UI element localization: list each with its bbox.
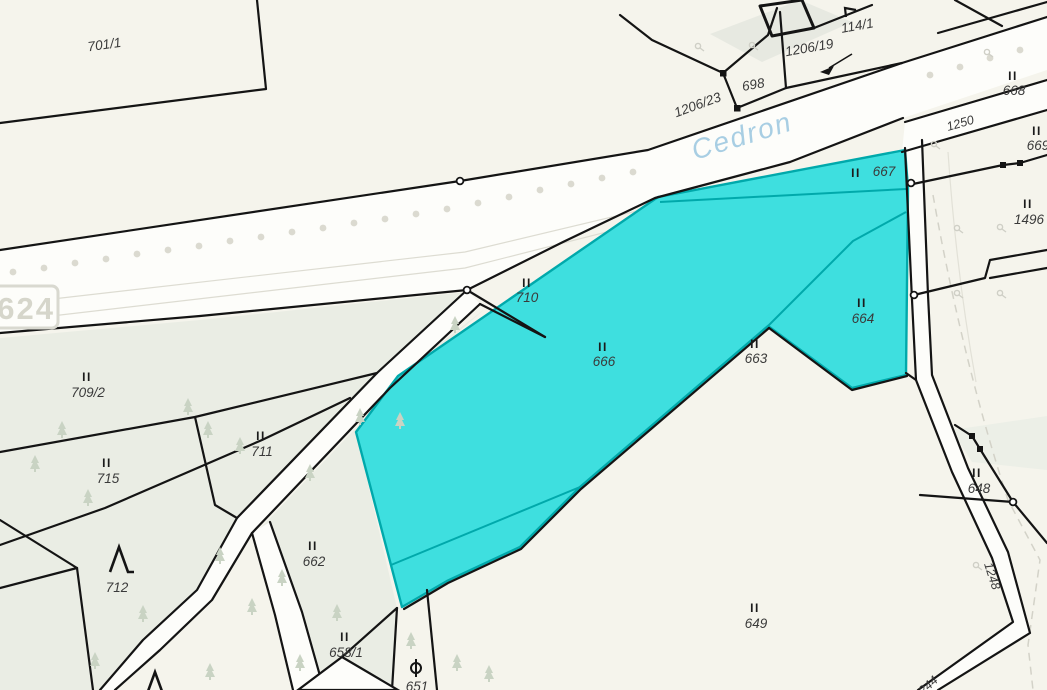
svg-text:II: II [1008,69,1018,83]
parcel-712[interactable]: 712 [106,580,129,595]
svg-text:II: II [102,456,112,470]
map-svg[interactable]: 8624 Cedron 1250 1248 1244 701/1 1206/23… [0,0,1047,690]
svg-text:666: 666 [593,354,616,369]
svg-text:II: II [256,429,266,443]
svg-text:664: 664 [852,311,875,326]
svg-text:712: 712 [106,580,129,595]
road-number-box: 8624 [0,286,58,328]
svg-text:II: II [750,601,760,615]
svg-text:1496: 1496 [1014,212,1045,227]
svg-text:663: 663 [745,351,768,366]
svg-text:669: 669 [1027,138,1047,153]
parcel-651[interactable]: 651 [406,679,429,690]
svg-text:711: 711 [251,444,273,459]
svg-text:II: II [598,340,608,354]
svg-text:II: II [851,166,861,180]
svg-text:715: 715 [97,471,120,486]
svg-text:II: II [1023,197,1033,211]
svg-text:667: 667 [873,164,896,179]
svg-text:649: 649 [745,616,768,631]
svg-text:II: II [522,276,532,290]
svg-text:II: II [82,370,92,384]
svg-text:651: 651 [406,679,429,690]
road-number-label: 8624 [0,291,55,326]
svg-text:709/2: 709/2 [71,385,105,400]
svg-text:II: II [1032,124,1042,138]
svg-text:II: II [750,337,760,351]
cadastral-map-canvas[interactable]: 8624 Cedron 1250 1248 1244 701/1 1206/23… [0,0,1047,690]
parcel-667[interactable]: II 667 [851,164,896,180]
svg-text:710: 710 [516,290,539,305]
svg-text:II: II [857,296,867,310]
svg-text:658/1: 658/1 [329,645,363,660]
svg-text:662: 662 [303,554,326,569]
svg-text:668: 668 [1003,83,1026,98]
svg-text:II: II [340,630,350,644]
svg-text:II: II [972,466,982,480]
svg-text:II: II [308,539,318,553]
svg-text:648: 648 [968,481,991,496]
